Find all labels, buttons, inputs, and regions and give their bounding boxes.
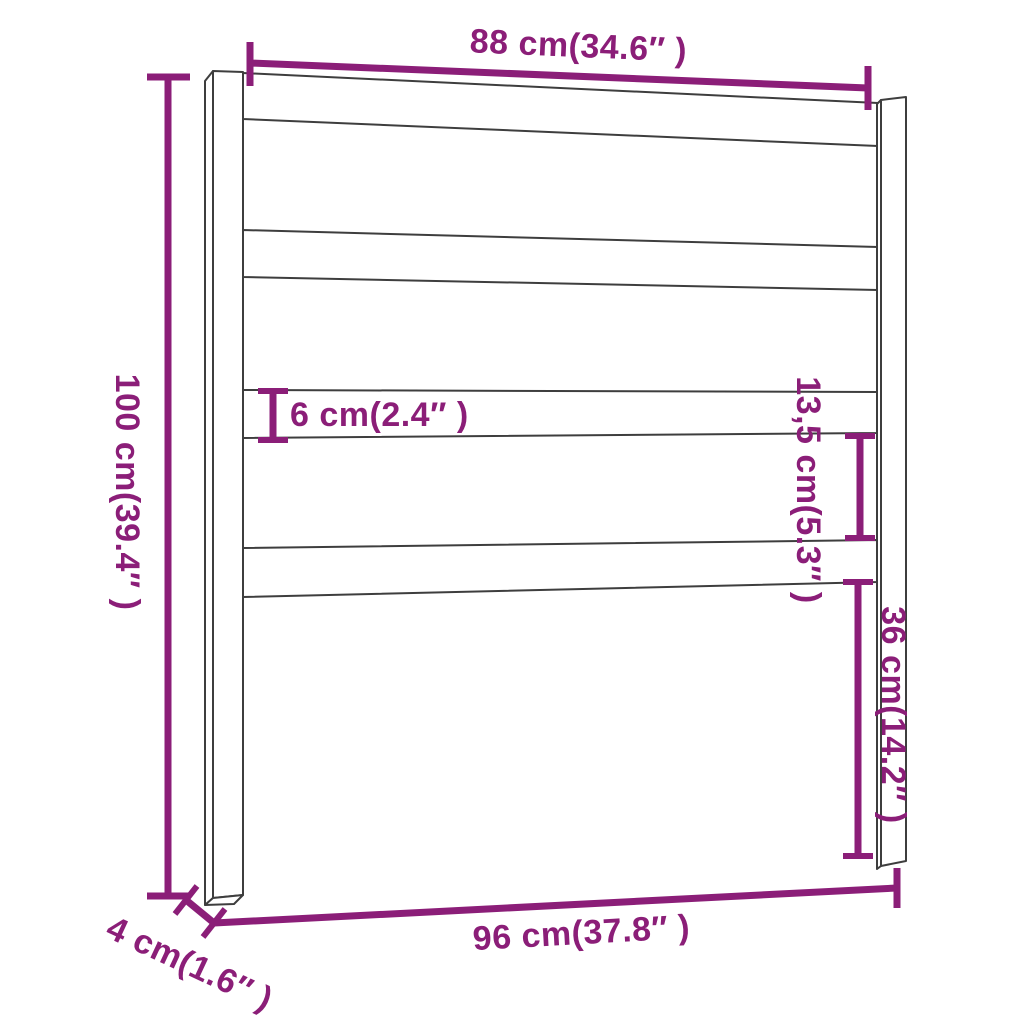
label-bottom-width: 96 cm(37.8″ ) bbox=[472, 908, 691, 958]
label-slat-gap: 13,5 cm(5.3″ ) bbox=[789, 376, 827, 603]
label-lower-gap: 36 cm(14.2″ ) bbox=[874, 606, 912, 823]
dimension-lines bbox=[147, 42, 897, 937]
left-post-front-face bbox=[213, 71, 243, 898]
label-post-depth: 4 cm(1.6″ ) bbox=[101, 909, 279, 1019]
left-post-side-face bbox=[205, 71, 213, 905]
slat-4 bbox=[243, 540, 878, 597]
slat-2 bbox=[243, 230, 878, 290]
label-slat-thickness: 6 cm(2.4″ ) bbox=[290, 396, 469, 434]
label-top-width: 88 cm(34.6″ ) bbox=[469, 22, 688, 69]
headboard-dimension-diagram: 88 cm(34.6″ ) 100 cm(39.4″ ) 6 cm(2.4″ )… bbox=[0, 0, 1024, 1024]
label-left-height: 100 cm(39.4″ ) bbox=[108, 374, 146, 611]
